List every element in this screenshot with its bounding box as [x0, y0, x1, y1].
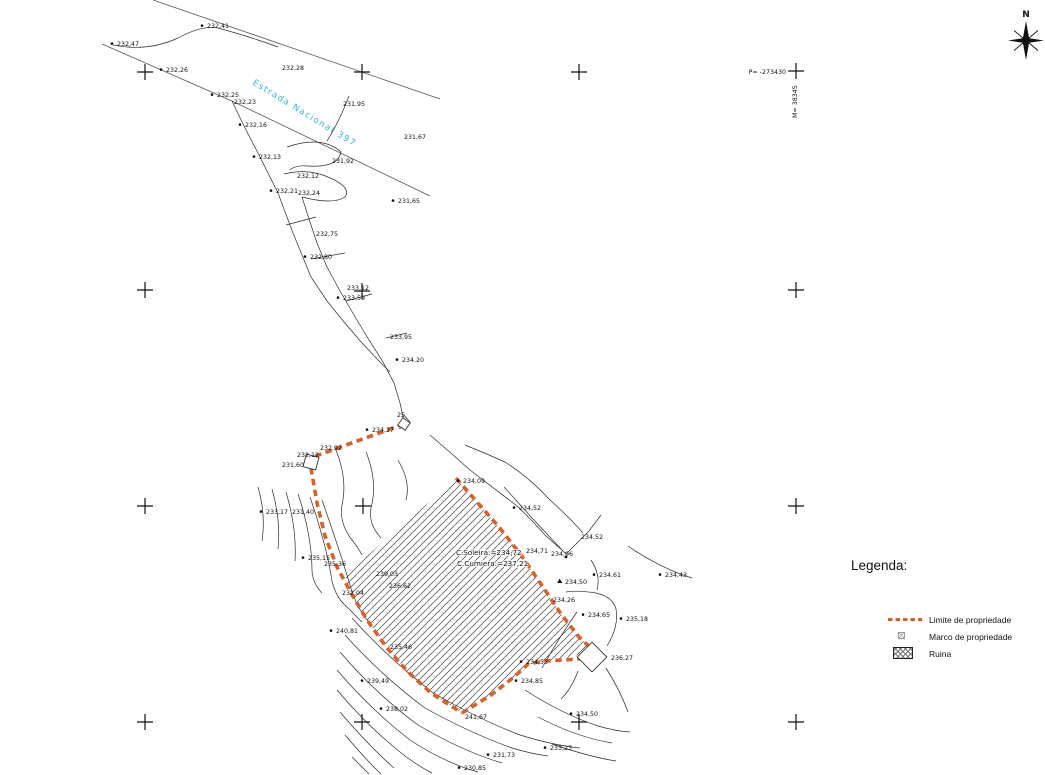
crossed-square-swatch	[898, 632, 905, 639]
survey-point	[160, 68, 163, 71]
survey-point	[304, 255, 307, 258]
survey-point	[593, 573, 596, 576]
survey-point	[457, 479, 460, 482]
grid-cross	[354, 714, 370, 730]
survey-point	[659, 573, 662, 576]
spot-elevation-label: 241,67	[465, 714, 487, 721]
survey-point	[337, 296, 340, 299]
contour-line	[504, 487, 601, 554]
spot-elevation-label: 231,73	[493, 752, 515, 759]
spot-elevation-label: 235,46	[390, 644, 412, 651]
spot-elevation-label: 234,53	[526, 659, 548, 666]
spot-elevation-label: 232,80	[310, 254, 332, 261]
spot-elevation-label: 234,20	[402, 357, 424, 364]
survey-point	[544, 746, 547, 749]
grid-p-coordinate: P= -273430	[749, 69, 786, 76]
spot-elevation-label: 232,16	[245, 122, 267, 129]
legend-item-label: Ruina	[929, 649, 951, 659]
legend-item-ruina: Ruina	[845, 645, 1045, 662]
grid-cross	[571, 64, 587, 80]
spot-elevation-label: 235,36	[324, 561, 346, 568]
site-plan-canvas: 232,41232,47232,26232,28232,25232,23231,…	[0, 0, 1045, 775]
contour-line	[286, 492, 295, 561]
contour-line	[335, 448, 362, 555]
spot-elevation-label: 231,60	[282, 462, 304, 469]
grid-cross	[137, 498, 153, 514]
spot-elevation-label: 233,23	[550, 745, 572, 752]
spot-elevation-label: 232,21	[276, 188, 298, 195]
grid-cross	[788, 498, 804, 514]
north-label: N	[1022, 10, 1030, 20]
survey-point	[201, 24, 204, 27]
spot-elevation-label: 234,96	[551, 551, 573, 558]
survey-point-triangle	[557, 579, 562, 583]
spot-elevation-label: 238,02	[386, 706, 408, 713]
grid-cross	[137, 282, 153, 298]
spot-elevation-label: 232,25	[217, 92, 239, 99]
contour-line	[398, 460, 407, 500]
spot-elevation-label: 233,59	[343, 295, 365, 302]
spot-elevation-label: 232,26	[166, 67, 188, 74]
spot-elevation-label: 235,18	[626, 616, 648, 623]
contour-line	[272, 489, 279, 549]
survey-point	[239, 123, 242, 126]
survey-point	[396, 358, 399, 361]
spot-elevation-label: 232,28	[282, 65, 304, 72]
road-edge	[102, 44, 430, 196]
grid-cross	[355, 498, 371, 514]
contour-line	[561, 671, 578, 699]
spot-elevation-label: 234,27	[372, 427, 394, 434]
survey-point	[620, 617, 623, 620]
grid-cross	[354, 64, 370, 80]
survey-point	[487, 753, 490, 756]
spot-elevation-label: 232,41	[207, 23, 229, 30]
hatch-swatch	[893, 647, 913, 659]
spot-elevation-label: 234,65	[588, 612, 610, 619]
spot-elevation-label: 234,85	[521, 678, 543, 685]
spot-elevation-label: 234,52	[581, 534, 603, 541]
spot-elevation-label: 232,47	[117, 41, 139, 48]
spot-elevation-label: 231,67	[404, 134, 426, 141]
spot-elevation-label: 232,23	[234, 99, 256, 106]
spot-elevation-label: 234,09	[463, 478, 485, 485]
survey-point	[513, 506, 516, 509]
grid-cross	[788, 63, 804, 79]
survey-point	[582, 613, 585, 616]
contour-line	[366, 452, 381, 538]
building-elevation-label: C.Cumiera:=237,21	[457, 559, 528, 568]
spot-elevation-label: 231,65	[398, 198, 420, 205]
spot-elevation-label: 230,85	[464, 765, 486, 772]
survey-point	[211, 93, 214, 96]
dashed-line-swatch	[888, 618, 922, 621]
spot-elevation-label: 232,12	[297, 173, 319, 180]
spot-elevation-label: 240,81	[336, 628, 358, 635]
survey-point	[361, 679, 364, 682]
spot-elevation-label: 233,95	[390, 334, 412, 341]
survey-point	[302, 556, 305, 559]
legend-item-label: Limite de propriedade	[929, 615, 1011, 625]
spot-elevation-label: 232,24	[298, 190, 320, 197]
spot-elevation-label: 25	[397, 412, 405, 419]
grid-cross	[788, 714, 804, 730]
spot-elevation-label: 232,12	[297, 452, 319, 459]
survey-point	[111, 42, 114, 45]
contour-line	[232, 101, 390, 372]
contour-line	[287, 142, 341, 170]
contour-line	[606, 668, 628, 712]
spot-elevation-label: 234,26	[553, 597, 575, 604]
spot-elevation-label: 231,92	[332, 158, 354, 165]
spot-elevation-label: 231,40	[292, 509, 314, 516]
grid-cross	[137, 714, 153, 730]
survey-point	[515, 679, 518, 682]
survey-point	[330, 629, 333, 632]
survey-point	[260, 510, 263, 513]
spot-elevation-label: 234,43	[665, 572, 687, 579]
survey-point	[366, 428, 369, 431]
spot-elevation-label: 232,92	[320, 445, 342, 452]
spot-elevation-label: 234,52	[519, 505, 541, 512]
spot-elevation-label: 233,12	[347, 285, 369, 292]
spot-elevation-label: 232,75	[316, 231, 338, 238]
survey-point	[458, 766, 461, 769]
spot-elevation-label: 239,03	[376, 571, 398, 578]
contour-line	[258, 487, 263, 541]
grid-cross	[137, 64, 153, 80]
survey-point	[270, 189, 273, 192]
contour-line	[538, 717, 612, 743]
north-arrow: N	[1008, 10, 1044, 60]
road-edge	[153, 0, 440, 99]
grid-cross	[788, 282, 804, 298]
spot-elevation-label: 236,62	[389, 583, 411, 590]
survey-point	[392, 199, 395, 202]
legend-item-marco: Marco de propriedade	[845, 628, 1045, 645]
spot-elevation-label: 232,13	[259, 154, 281, 161]
spot-elevation-label: 234,61	[599, 572, 621, 579]
building-elevation-label: C.Soleira:=234,72	[456, 548, 522, 557]
spot-elevation-label: 233,17	[266, 509, 288, 516]
survey-point	[570, 712, 573, 715]
spot-elevation-label: 234,50	[576, 711, 598, 718]
legend: Legenda: Limite de propriedade Marco de …	[845, 557, 1045, 662]
legend-item-label: Marco de propriedade	[929, 632, 1012, 642]
spot-elevation-label: 232,04	[342, 590, 364, 597]
survey-point	[520, 660, 523, 663]
spot-elevation-label: 234,50	[565, 579, 587, 586]
survey-point	[253, 155, 256, 158]
spot-elevation-label: 234,71	[526, 548, 548, 555]
spot-elevation-label: 239,49	[367, 678, 389, 685]
grid-m-coordinate: M= 38345	[792, 85, 799, 118]
legend-item-limite: Limite de propriedade	[845, 611, 1045, 628]
survey-point	[380, 707, 383, 710]
spot-elevation-label: 231,95	[343, 101, 365, 108]
legend-title: Legenda:	[845, 557, 1045, 575]
spot-elevation-label: 236,27	[611, 655, 633, 662]
contour-line	[286, 217, 316, 225]
